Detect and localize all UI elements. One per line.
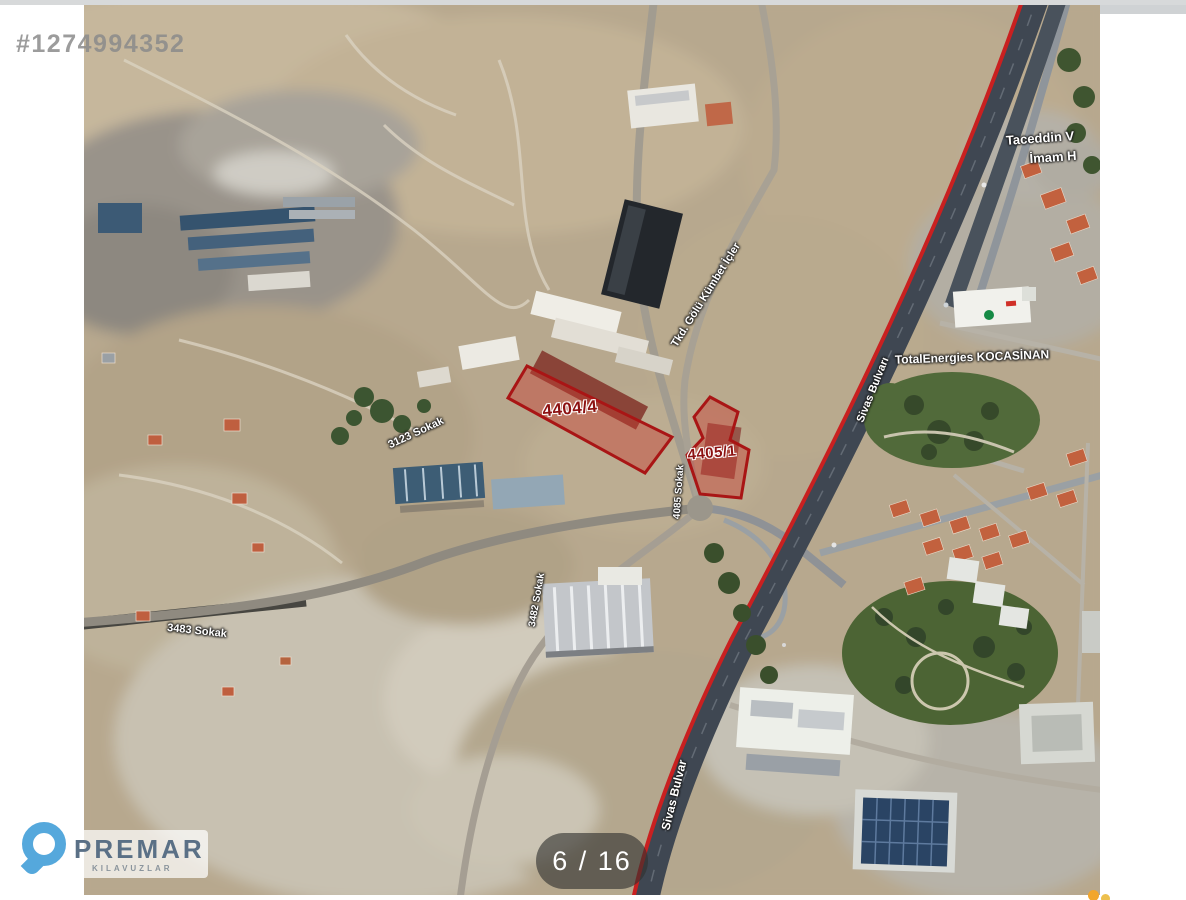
premar-brand-text: PREMAR	[74, 834, 205, 865]
satellite-imagery	[84, 5, 1100, 895]
listing-photo-page: 4404/4 4405/1 Taceddin V İmam H TotalEne…	[0, 0, 1186, 900]
cut-off-marker-dot	[1088, 890, 1099, 900]
photo-counter-text: 6 / 16	[552, 846, 632, 877]
premar-pin-icon	[22, 822, 66, 866]
cut-off-marker-dot	[1101, 894, 1110, 900]
top-border-line-right	[1100, 5, 1186, 14]
satellite-map-photo[interactable]: 4404/4 4405/1 Taceddin V İmam H TotalEne…	[84, 5, 1100, 895]
photo-counter-pill: 6 / 16	[536, 833, 648, 889]
premar-logo: PREMAR KILAVUZLAR	[14, 816, 214, 888]
premar-subtitle-text: KILAVUZLAR	[92, 864, 173, 873]
listing-id-watermark: #1274994352	[16, 30, 185, 59]
